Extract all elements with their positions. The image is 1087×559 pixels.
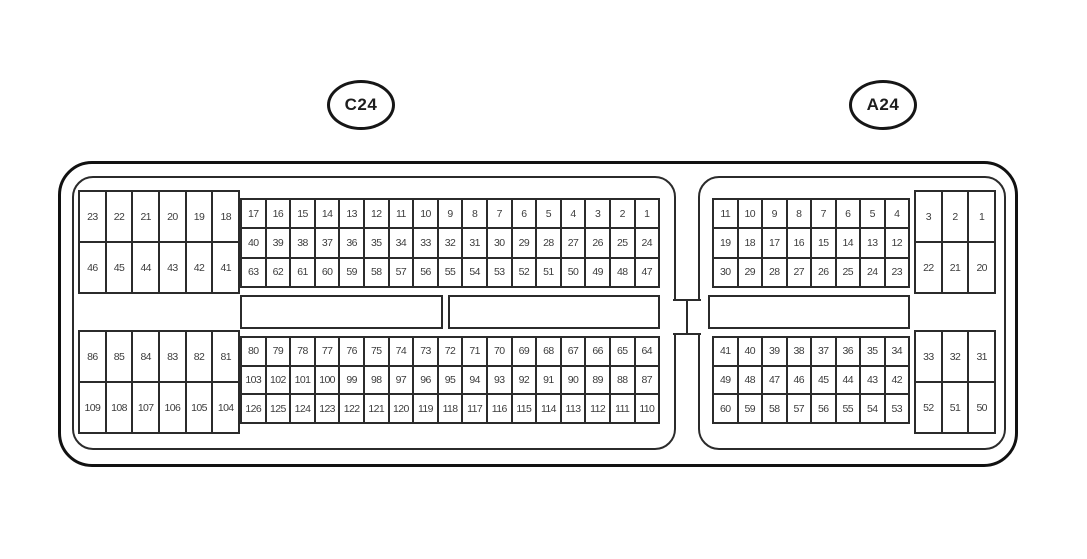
pin-104: 104: [211, 383, 238, 432]
pin-56: 56: [412, 259, 437, 286]
pin-70: 70: [486, 338, 511, 365]
pin-49: 49: [714, 367, 737, 394]
pin-row: 868584838281: [80, 332, 238, 381]
pin-row: 1716151413121110987654321: [242, 200, 658, 227]
pin-47: 47: [761, 367, 786, 394]
pin-107: 107: [131, 383, 158, 432]
pin-41: 41: [211, 243, 238, 292]
pin-111: 111: [609, 395, 634, 422]
pin-29: 29: [511, 229, 536, 256]
pin-14: 14: [314, 200, 339, 227]
pin-16: 16: [265, 200, 290, 227]
pin-row: 4948474645444342: [714, 365, 908, 394]
pin-61: 61: [289, 259, 314, 286]
pin-34: 34: [884, 338, 909, 365]
pin-25: 25: [835, 259, 860, 286]
pin-58: 58: [363, 259, 388, 286]
pin-20: 20: [158, 192, 185, 241]
connector-label-a24: A24: [849, 80, 917, 130]
connector-label-c24: C24: [327, 80, 395, 130]
c24-keyway-slot-1: [240, 295, 443, 329]
pin-40: 40: [242, 229, 265, 256]
pin-32: 32: [941, 332, 968, 381]
pin-row: 1261251241231221211201191181171161151141…: [242, 393, 658, 422]
pin-33: 33: [412, 229, 437, 256]
c24-top-side-pin-grid: 232221201918464544434241: [78, 190, 240, 294]
pin-13: 13: [859, 229, 884, 256]
pin-7: 7: [810, 200, 835, 227]
a24-bottom-main-pin-grid: 4140393837363534494847464544434260595857…: [712, 336, 910, 424]
a24-top-main-pin-grid: 1110987654191817161514131230292827262524…: [712, 198, 910, 288]
pin-row: 232221201918: [80, 192, 238, 241]
pin-44: 44: [131, 243, 158, 292]
connector-pinout-diagram: C24 A24 232221201918464544434241 1716151…: [0, 0, 1087, 559]
pin-24: 24: [634, 229, 659, 256]
pin-102: 102: [265, 367, 290, 394]
pin-7: 7: [486, 200, 511, 227]
a24-top-side-pin-grid: 321222120: [914, 190, 996, 294]
pin-row: 333231: [916, 332, 994, 381]
pin-76: 76: [338, 338, 363, 365]
pin-row: 222120: [916, 241, 994, 292]
pin-126: 126: [242, 395, 265, 422]
pin-23: 23: [80, 192, 105, 241]
pin-97: 97: [388, 367, 413, 394]
pin-38: 38: [786, 338, 811, 365]
pin-14: 14: [835, 229, 860, 256]
pin-row: 464544434241: [80, 241, 238, 292]
pin-39: 39: [265, 229, 290, 256]
pin-30: 30: [714, 259, 737, 286]
pin-51: 51: [941, 383, 968, 432]
pin-106: 106: [158, 383, 185, 432]
pin-17: 17: [242, 200, 265, 227]
pin-row: 6362616059585756555453525150494847: [242, 257, 658, 286]
pin-79: 79: [265, 338, 290, 365]
pin-38: 38: [289, 229, 314, 256]
pin-36: 36: [338, 229, 363, 256]
pin-19: 19: [714, 229, 737, 256]
c24-bottom-side-pin-grid: 868584838281109108107106105104: [78, 330, 240, 434]
pin-22: 22: [916, 243, 941, 292]
pin-1: 1: [634, 200, 659, 227]
pin-115: 115: [511, 395, 536, 422]
pin-81: 81: [211, 332, 238, 381]
pin-85: 85: [105, 332, 132, 381]
pin-50: 50: [967, 383, 994, 432]
pin-row: 3029282726252423: [714, 257, 908, 286]
a24-bottom-side-pin-grid: 333231525150: [914, 330, 996, 434]
pin-60: 60: [314, 259, 339, 286]
pin-24: 24: [859, 259, 884, 286]
pin-58: 58: [761, 395, 786, 422]
pin-80: 80: [242, 338, 265, 365]
pin-124: 124: [289, 395, 314, 422]
pin-98: 98: [363, 367, 388, 394]
pin-27: 27: [786, 259, 811, 286]
pin-86: 86: [80, 332, 105, 381]
pin-18: 18: [737, 229, 762, 256]
pin-2: 2: [941, 192, 968, 241]
pin-39: 39: [761, 338, 786, 365]
pin-55: 55: [437, 259, 462, 286]
pin-66: 66: [584, 338, 609, 365]
pin-88: 88: [609, 367, 634, 394]
pin-row: 4140393837363534: [714, 338, 908, 365]
c24-bottom-main-pin-grid: 8079787776757473727170696867666564103102…: [240, 336, 660, 424]
pin-27: 27: [560, 229, 585, 256]
c24-keyway-slot-2: [448, 295, 660, 329]
pin-91: 91: [535, 367, 560, 394]
pin-57: 57: [388, 259, 413, 286]
pin-89: 89: [584, 367, 609, 394]
connector-label-a24-text: A24: [867, 95, 900, 115]
pin-row: 6059585756555453: [714, 393, 908, 422]
pin-2: 2: [609, 200, 634, 227]
c24-housing: 232221201918464544434241 171615141312111…: [72, 176, 676, 450]
pin-45: 45: [105, 243, 132, 292]
pin-122: 122: [338, 395, 363, 422]
pin-55: 55: [835, 395, 860, 422]
pin-1: 1: [967, 192, 994, 241]
pin-108: 108: [105, 383, 132, 432]
pin-49: 49: [584, 259, 609, 286]
pin-row: 4039383736353433323130292827262524: [242, 227, 658, 256]
pin-row: 10310210110099989796959493929190898887: [242, 365, 658, 394]
pin-4: 4: [560, 200, 585, 227]
pin-105: 105: [185, 383, 212, 432]
pin-32: 32: [437, 229, 462, 256]
pin-36: 36: [835, 338, 860, 365]
pin-21: 21: [941, 243, 968, 292]
pin-45: 45: [810, 367, 835, 394]
pin-13: 13: [338, 200, 363, 227]
pin-100: 100: [314, 367, 339, 394]
pin-4: 4: [884, 200, 909, 227]
pin-47: 47: [634, 259, 659, 286]
pin-101: 101: [289, 367, 314, 394]
pin-6: 6: [511, 200, 536, 227]
pin-row: 525150: [916, 381, 994, 432]
pin-46: 46: [786, 367, 811, 394]
pin-53: 53: [884, 395, 909, 422]
pin-3: 3: [916, 192, 941, 241]
pin-82: 82: [185, 332, 212, 381]
pin-3: 3: [584, 200, 609, 227]
pin-52: 52: [511, 259, 536, 286]
pin-43: 43: [158, 243, 185, 292]
pin-44: 44: [835, 367, 860, 394]
pin-40: 40: [737, 338, 762, 365]
pin-31: 31: [461, 229, 486, 256]
pin-125: 125: [265, 395, 290, 422]
pin-48: 48: [609, 259, 634, 286]
pin-60: 60: [714, 395, 737, 422]
pin-119: 119: [412, 395, 437, 422]
pin-row: 109108107106105104: [80, 381, 238, 432]
pin-83: 83: [158, 332, 185, 381]
pin-row: 1918171615141312: [714, 227, 908, 256]
pin-99: 99: [338, 367, 363, 394]
pin-63: 63: [242, 259, 265, 286]
pin-59: 59: [338, 259, 363, 286]
pin-28: 28: [761, 259, 786, 286]
pin-103: 103: [242, 367, 265, 394]
pin-11: 11: [714, 200, 737, 227]
pin-121: 121: [363, 395, 388, 422]
c24-top-main-pin-grid: 1716151413121110987654321403938373635343…: [240, 198, 660, 288]
connector-outer-shell: 232221201918464544434241 171615141312111…: [58, 161, 1018, 467]
pin-56: 56: [810, 395, 835, 422]
pin-118: 118: [437, 395, 462, 422]
pin-114: 114: [535, 395, 560, 422]
pin-22: 22: [105, 192, 132, 241]
pin-8: 8: [461, 200, 486, 227]
pin-84: 84: [131, 332, 158, 381]
pin-73: 73: [412, 338, 437, 365]
pin-31: 31: [967, 332, 994, 381]
pin-92: 92: [511, 367, 536, 394]
pin-10: 10: [737, 200, 762, 227]
pin-26: 26: [584, 229, 609, 256]
pin-90: 90: [560, 367, 585, 394]
pin-116: 116: [486, 395, 511, 422]
pin-78: 78: [289, 338, 314, 365]
pin-68: 68: [535, 338, 560, 365]
pin-69: 69: [511, 338, 536, 365]
pin-117: 117: [461, 395, 486, 422]
a24-keyway-slot: [708, 295, 910, 329]
pin-15: 15: [810, 229, 835, 256]
pin-62: 62: [265, 259, 290, 286]
pin-43: 43: [859, 367, 884, 394]
pin-5: 5: [535, 200, 560, 227]
pin-57: 57: [786, 395, 811, 422]
pin-18: 18: [211, 192, 238, 241]
pin-row: 8079787776757473727170696867666564: [242, 338, 658, 365]
pin-33: 33: [916, 332, 941, 381]
pin-10: 10: [412, 200, 437, 227]
pin-120: 120: [388, 395, 413, 422]
pin-26: 26: [810, 259, 835, 286]
pin-12: 12: [884, 229, 909, 256]
a24-housing: 1110987654191817161514131230292827262524…: [698, 176, 1006, 450]
pin-30: 30: [486, 229, 511, 256]
pin-64: 64: [634, 338, 659, 365]
pin-11: 11: [388, 200, 413, 227]
pin-67: 67: [560, 338, 585, 365]
pin-35: 35: [363, 229, 388, 256]
pin-74: 74: [388, 338, 413, 365]
pin-123: 123: [314, 395, 339, 422]
pin-54: 54: [859, 395, 884, 422]
pin-77: 77: [314, 338, 339, 365]
pin-96: 96: [412, 367, 437, 394]
pin-42: 42: [884, 367, 909, 394]
pin-25: 25: [609, 229, 634, 256]
pin-23: 23: [884, 259, 909, 286]
pin-52: 52: [916, 383, 941, 432]
pin-row: 1110987654: [714, 200, 908, 227]
pin-12: 12: [363, 200, 388, 227]
pin-21: 21: [131, 192, 158, 241]
pin-20: 20: [967, 243, 994, 292]
pin-34: 34: [388, 229, 413, 256]
pin-9: 9: [761, 200, 786, 227]
pin-16: 16: [786, 229, 811, 256]
pin-48: 48: [737, 367, 762, 394]
pin-50: 50: [560, 259, 585, 286]
pin-46: 46: [80, 243, 105, 292]
pin-65: 65: [609, 338, 634, 365]
pin-95: 95: [437, 367, 462, 394]
pin-15: 15: [289, 200, 314, 227]
pin-6: 6: [835, 200, 860, 227]
pin-19: 19: [185, 192, 212, 241]
a24-latch-tab: [686, 299, 701, 335]
pin-53: 53: [486, 259, 511, 286]
pin-35: 35: [859, 338, 884, 365]
pin-37: 37: [810, 338, 835, 365]
pin-9: 9: [437, 200, 462, 227]
pin-29: 29: [737, 259, 762, 286]
pin-75: 75: [363, 338, 388, 365]
pin-71: 71: [461, 338, 486, 365]
connector-label-c24-text: C24: [345, 95, 378, 115]
pin-51: 51: [535, 259, 560, 286]
pin-8: 8: [786, 200, 811, 227]
pin-112: 112: [584, 395, 609, 422]
pin-110: 110: [634, 395, 659, 422]
pin-109: 109: [80, 383, 105, 432]
pin-41: 41: [714, 338, 737, 365]
pin-row: 321: [916, 192, 994, 241]
pin-72: 72: [437, 338, 462, 365]
pin-42: 42: [185, 243, 212, 292]
pin-54: 54: [461, 259, 486, 286]
pin-37: 37: [314, 229, 339, 256]
pin-94: 94: [461, 367, 486, 394]
pin-5: 5: [859, 200, 884, 227]
pin-87: 87: [634, 367, 659, 394]
pin-28: 28: [535, 229, 560, 256]
pin-59: 59: [737, 395, 762, 422]
pin-113: 113: [560, 395, 585, 422]
pin-17: 17: [761, 229, 786, 256]
pin-93: 93: [486, 367, 511, 394]
